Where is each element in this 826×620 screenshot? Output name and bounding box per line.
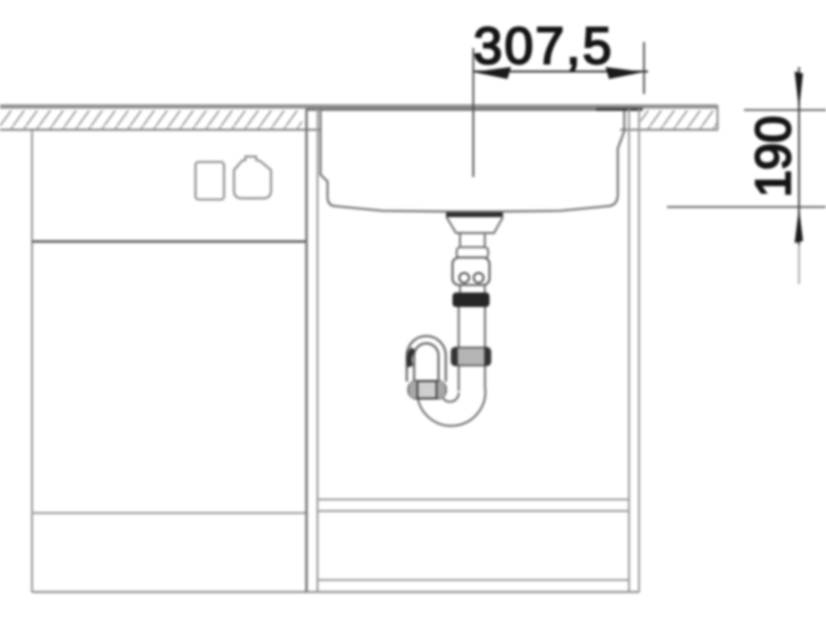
svg-text:190: 190: [747, 116, 801, 198]
svg-text:307,5: 307,5: [473, 18, 613, 76]
